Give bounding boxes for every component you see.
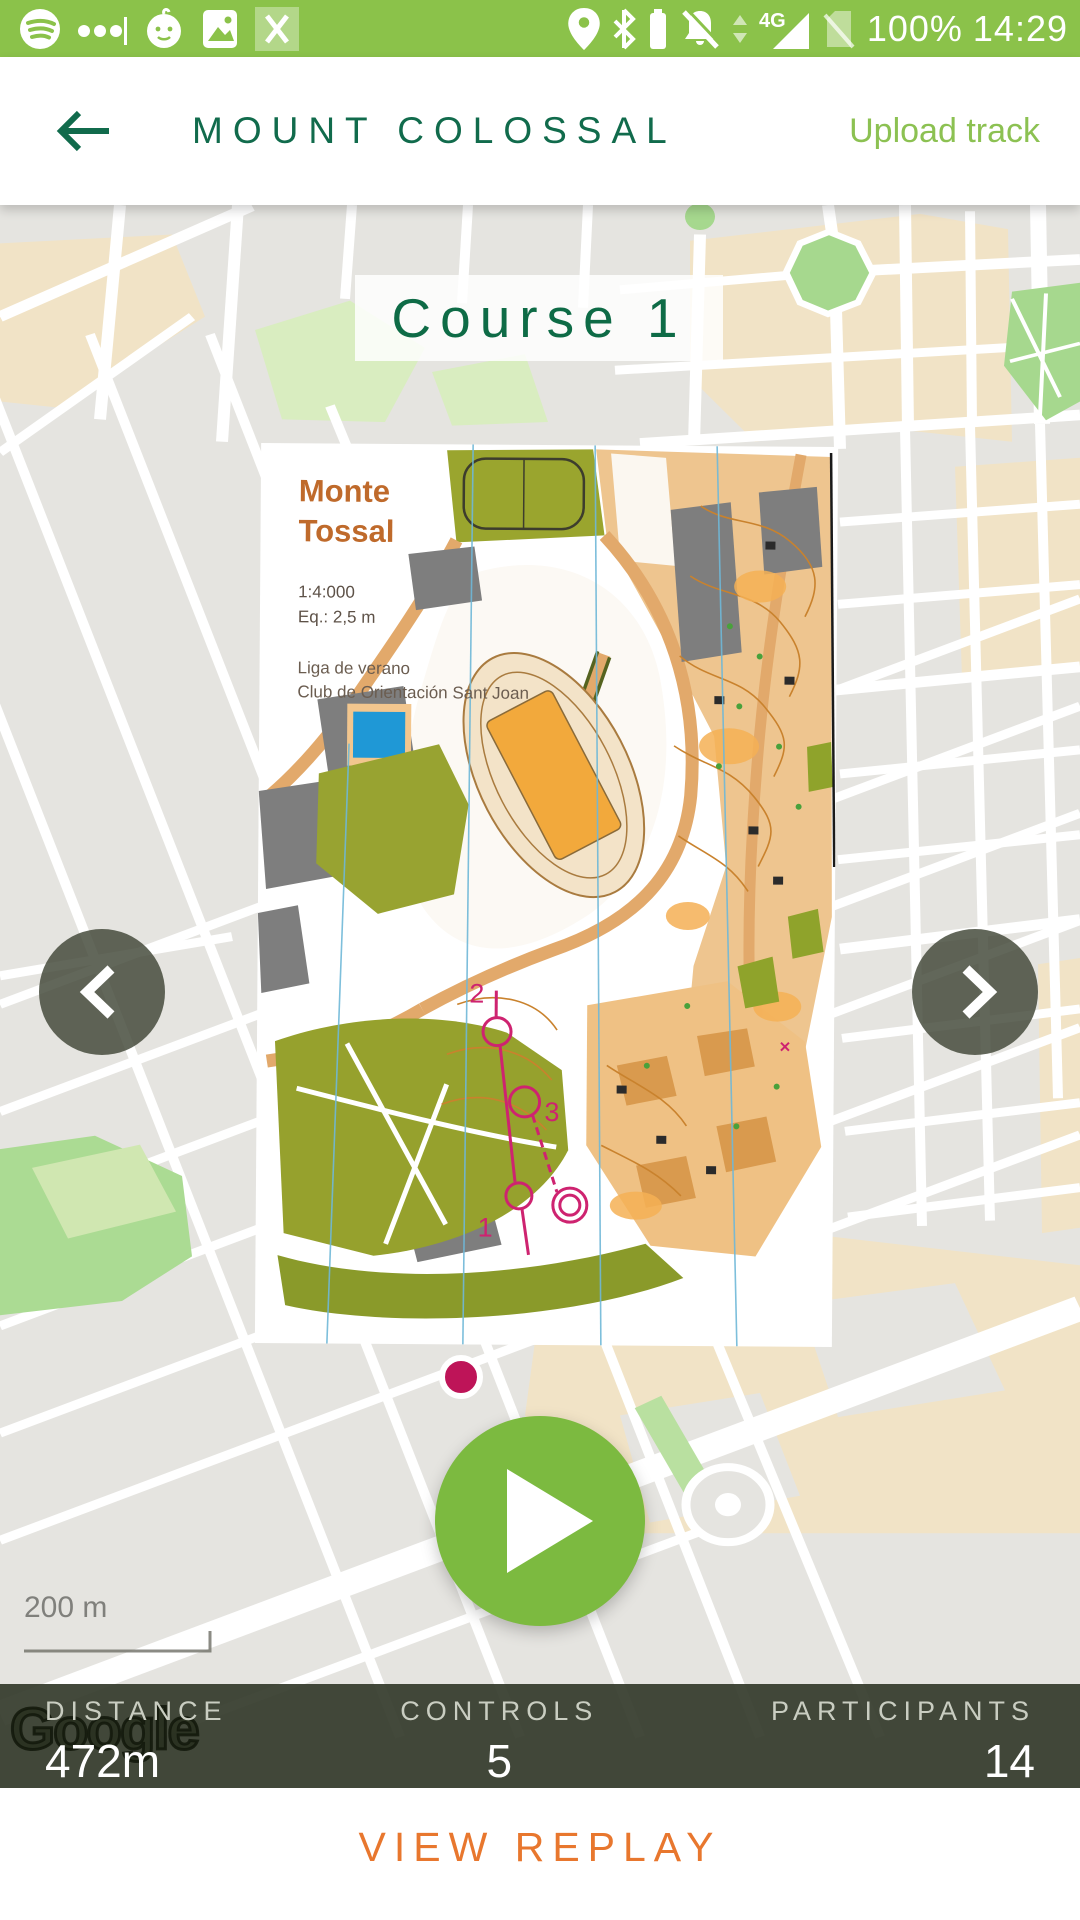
stat-participants: PARTICIPANTS 14 xyxy=(771,1696,1035,1788)
bluetooth-icon xyxy=(611,8,637,50)
status-bar-system-icons: 4G 100% 14:29 xyxy=(567,7,1068,51)
chevron-right-icon xyxy=(912,929,1038,1055)
omap-org-line2: Club de Orientación Sant Joan xyxy=(297,681,529,707)
next-course-button[interactable] xyxy=(912,929,1038,1055)
course-title-box: Course 1 xyxy=(355,275,723,361)
view-replay-button[interactable]: VIEW REPLAY xyxy=(359,1824,722,1876)
battery-percent-text: 100% xyxy=(867,8,963,50)
stat-distance-label: DISTANCE xyxy=(45,1696,228,1727)
omap-scale: 1:4:000 xyxy=(298,581,530,607)
play-button[interactable] xyxy=(435,1416,645,1626)
stat-participants-value: 14 xyxy=(984,1734,1035,1788)
omap-org-line1: Liga de verano xyxy=(297,656,529,682)
stat-distance: DISTANCE 472m xyxy=(45,1696,228,1788)
start-location-marker xyxy=(439,1355,483,1399)
stat-controls: CONTROLS 5 xyxy=(400,1696,598,1788)
map-scale-line xyxy=(22,1625,214,1653)
no-sim-icon xyxy=(821,7,857,51)
omap-title-line1: Monte xyxy=(299,471,531,512)
control-number-2: 2 xyxy=(469,978,484,1008)
app-screen: 4G 100% 14:29 MOUNT COLOSSAL Upload trac… xyxy=(0,0,1080,1920)
stat-distance-value: 472m xyxy=(45,1734,228,1788)
map-scale-label: 200 m xyxy=(24,1591,214,1625)
stat-controls-label: CONTROLS xyxy=(400,1696,598,1727)
svg-text:4G: 4G xyxy=(759,10,786,32)
course-title: Course 1 xyxy=(391,286,686,350)
stat-participants-label: PARTICIPANTS xyxy=(771,1696,1035,1727)
notification-dots-icon xyxy=(76,9,128,49)
omap-title-line2: Tossal xyxy=(298,511,530,552)
location-icon xyxy=(567,8,601,50)
chevron-left-icon xyxy=(39,929,165,1055)
bell-muted-icon xyxy=(679,7,721,51)
upload-track-button[interactable]: Upload track xyxy=(849,112,1040,151)
control-number-3: 3 xyxy=(544,1097,559,1127)
clock-text: 14:29 xyxy=(973,8,1068,50)
omap-equidistance: Eq.: 2,5 m xyxy=(298,605,530,631)
back-arrow-icon xyxy=(55,108,113,154)
data-arrows-icon xyxy=(731,9,749,49)
battery-icon xyxy=(647,8,669,50)
play-icon xyxy=(507,1469,593,1573)
stats-bar: Google DISTANCE 472m CONTROLS 5 PARTICIP… xyxy=(0,1684,1080,1788)
signal-4g-icon: 4G xyxy=(759,7,811,51)
control-number-1: 1 xyxy=(478,1213,493,1243)
spotify-icon xyxy=(18,7,62,51)
back-button[interactable] xyxy=(52,99,116,163)
previous-course-button[interactable] xyxy=(39,929,165,1055)
map-scale-bar: 200 m xyxy=(22,1591,214,1658)
baby-icon xyxy=(142,7,186,51)
close-icon xyxy=(254,6,300,52)
app-bar: MOUNT COLOSSAL Upload track xyxy=(0,57,1080,205)
orienteering-map-header: Monte Tossal 1:4:000 Eq.: 2,5 m Liga de … xyxy=(297,471,530,707)
orienteering-map-card[interactable]: Monte Tossal 1:4:000 Eq.: 2,5 m Liga de … xyxy=(255,443,838,1347)
photo-icon xyxy=(200,7,240,51)
status-bar: 4G 100% 14:29 xyxy=(0,0,1080,57)
status-bar-notification-icons xyxy=(18,6,300,52)
map-area[interactable]: Course 1 Monte Tossal 1:4:000 Eq.: 2,5 m… xyxy=(0,205,1080,1920)
stat-controls-value: 5 xyxy=(486,1734,512,1788)
footer-bar: VIEW REPLAY xyxy=(0,1788,1080,1920)
page-title: MOUNT COLOSSAL xyxy=(192,110,849,152)
